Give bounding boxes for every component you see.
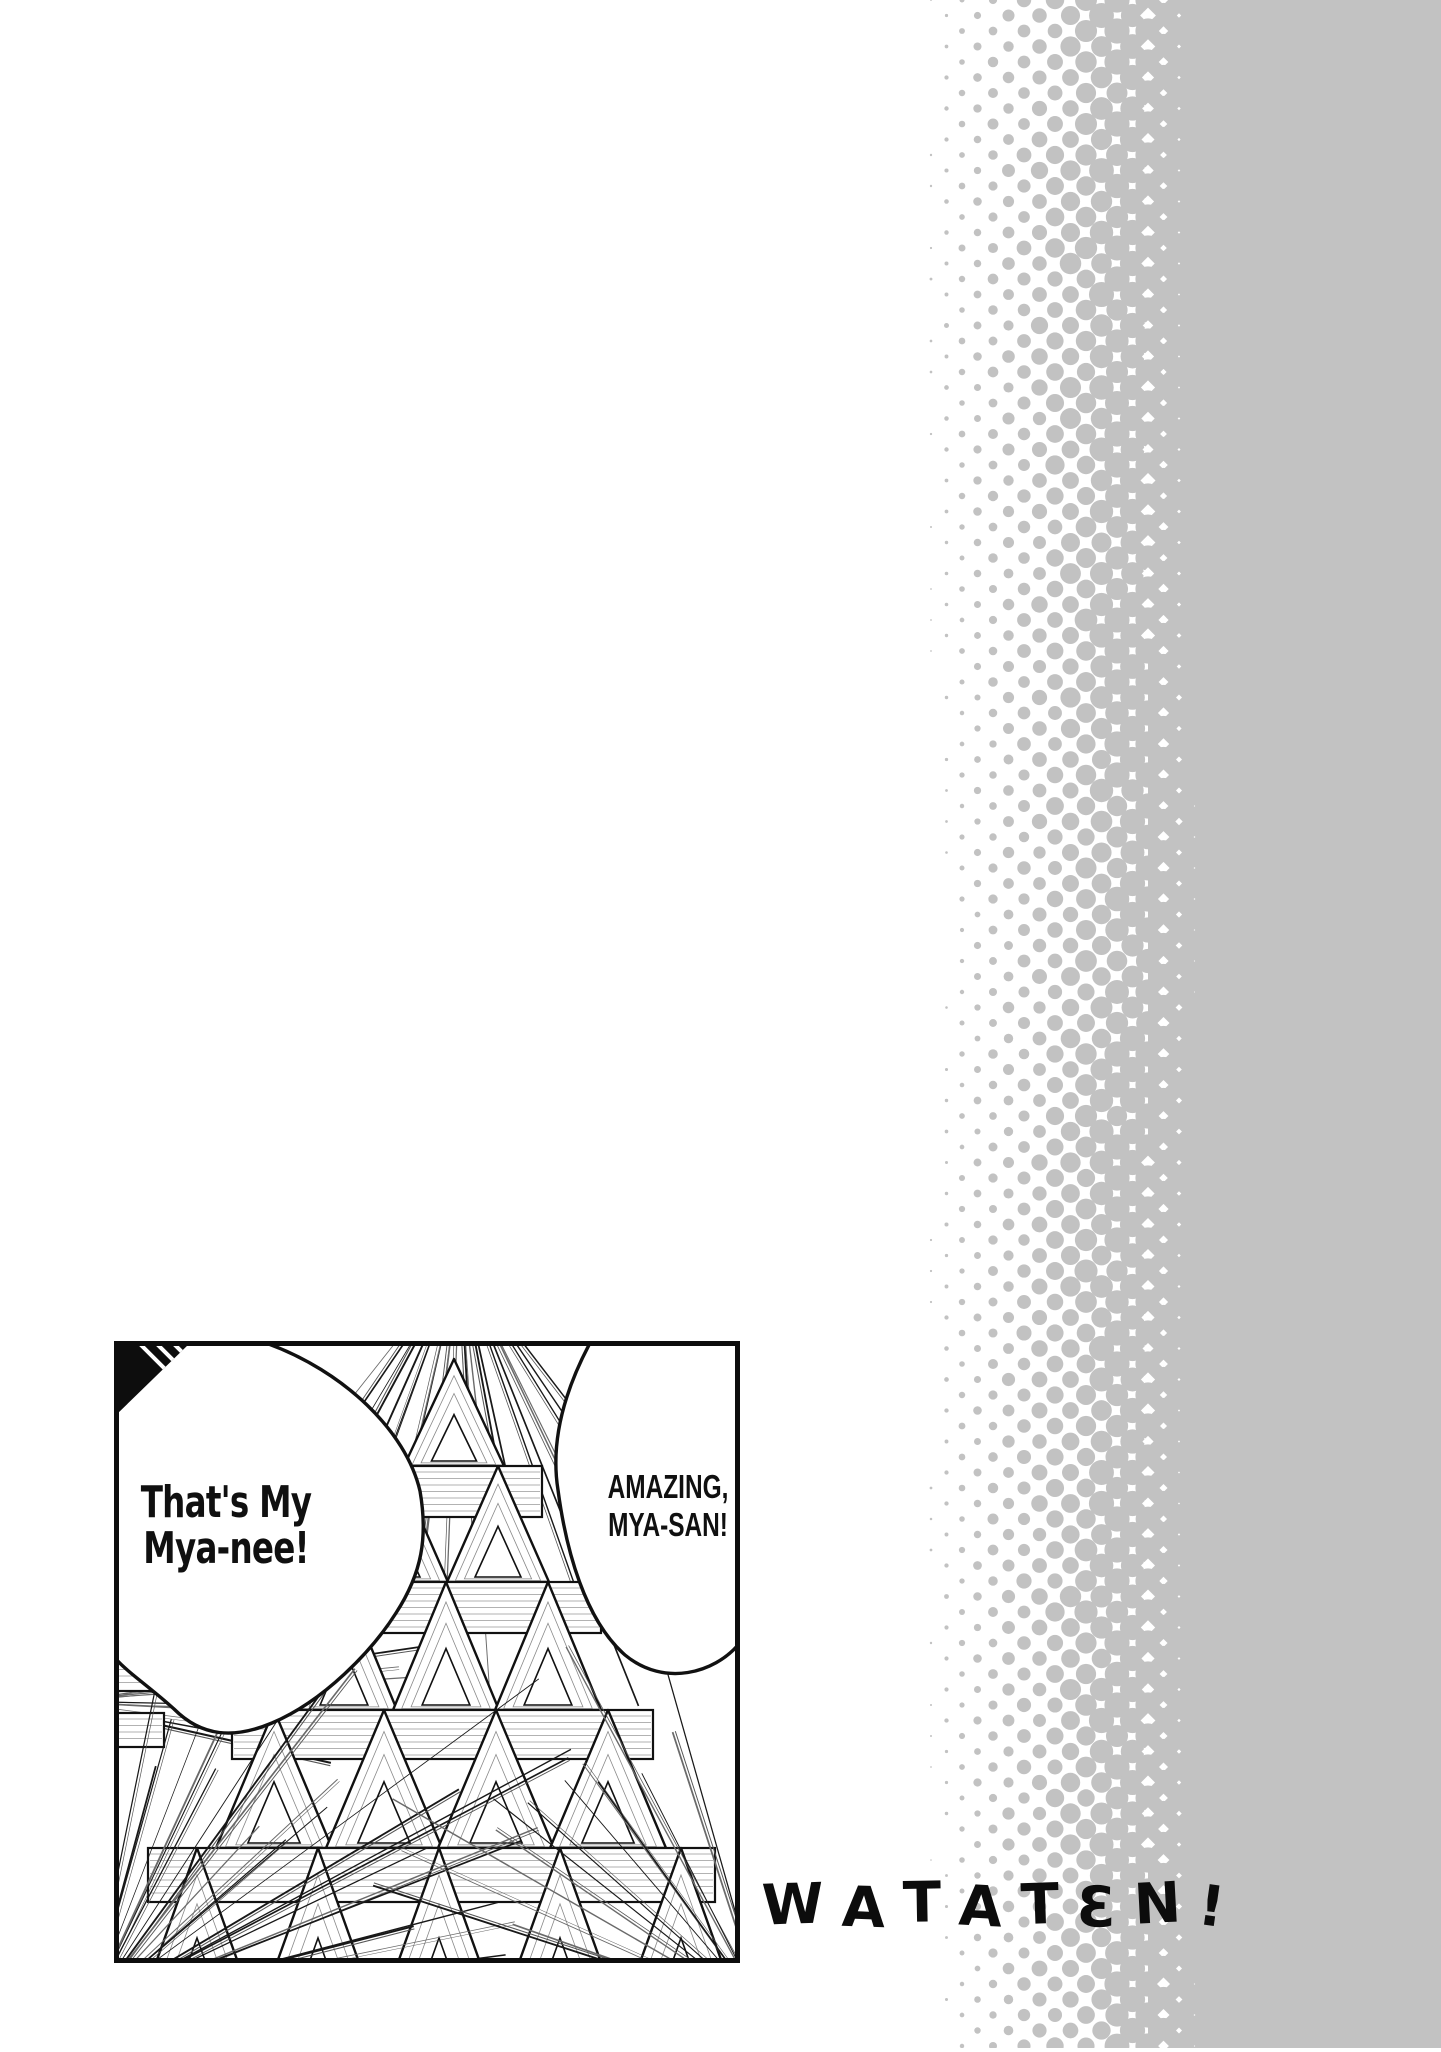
speech-line: That's My (141, 1480, 312, 1526)
logo-letter: Ɛ (1076, 1875, 1116, 1941)
speech-bubble-right-text: AMAZING, MYA-SAN! (608, 1468, 729, 1544)
halftone-gradient-strip (900, 0, 1441, 2048)
halftone-pattern (900, 0, 1441, 2048)
logo-letter: A (841, 1875, 887, 1941)
speech-bubble-left-text: That's My Mya-nee! (141, 1480, 312, 1572)
speech-line: Mya-nee! (141, 1526, 312, 1572)
manga-panel-artwork (114, 1341, 740, 1963)
logo-letter: A (958, 1873, 1005, 1940)
speech-line: AMAZING, (608, 1468, 729, 1506)
logo-letter: N (1132, 1870, 1182, 1937)
manga-panel (114, 1341, 740, 1963)
wataten-logo: WATATƐN! (762, 1873, 1224, 1938)
logo-letter: T (1020, 1872, 1060, 1938)
speech-line: MYA-SAN! (608, 1506, 729, 1544)
logo-letter: T (903, 1870, 942, 1936)
page-root: { "art": { "bubbles": { "left": { "line1… (0, 0, 1441, 2048)
logo-letter: W (761, 1871, 825, 1938)
logo-letter: ! (1194, 1873, 1228, 1941)
